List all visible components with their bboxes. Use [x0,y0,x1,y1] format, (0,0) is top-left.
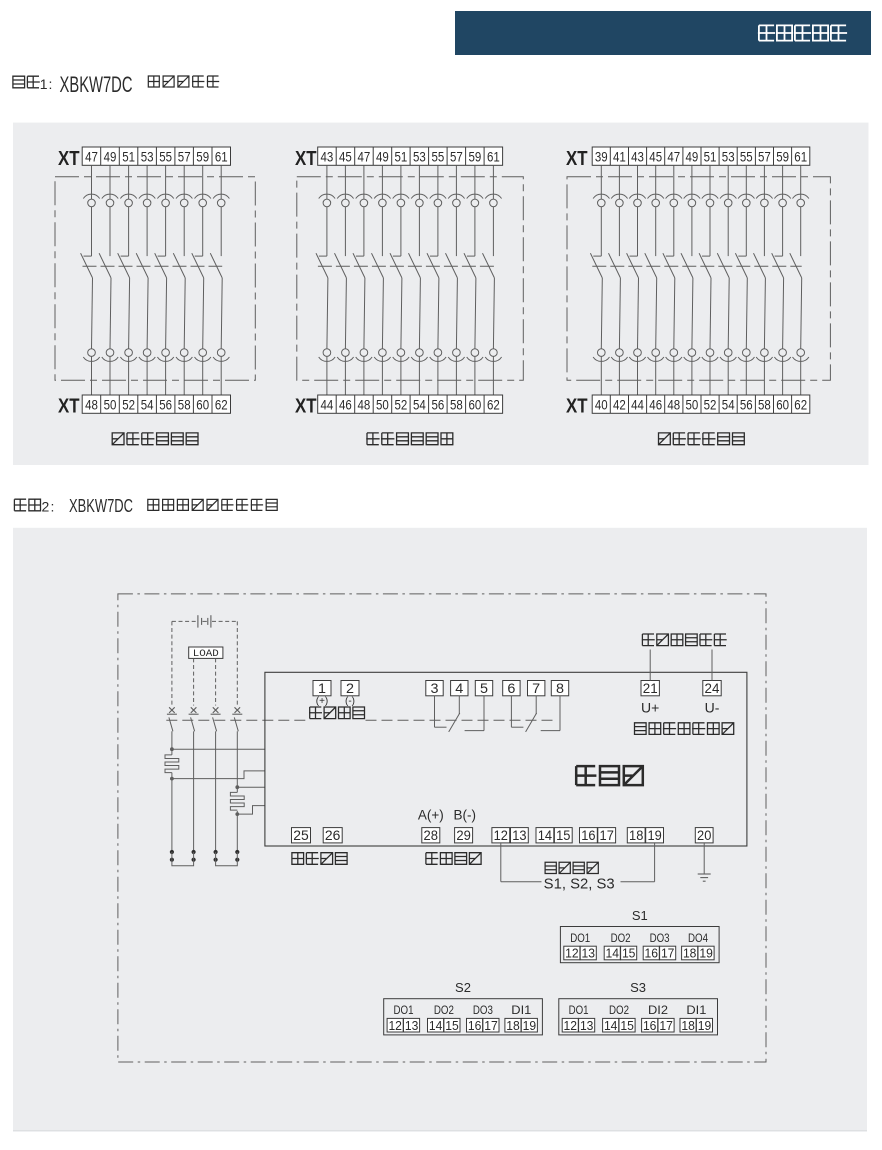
svg-text:XT: XT [58,396,80,418]
svg-text:S3: S3 [630,980,646,995]
svg-text:61: 61 [487,149,500,165]
svg-text:60: 60 [776,397,789,413]
svg-text:13: 13 [405,1018,419,1033]
svg-text:26: 26 [325,828,341,843]
svg-text:XT: XT [566,148,588,170]
svg-text:16: 16 [581,828,595,843]
svg-text:16: 16 [643,1018,657,1033]
svg-text:18: 18 [681,1018,695,1033]
svg-text:61: 61 [794,149,807,165]
svg-text:16: 16 [645,946,659,961]
svg-text:DO2: DO2 [609,1003,629,1017]
svg-text:54: 54 [722,397,735,413]
svg-text:LOAD: LOAD [193,648,219,660]
svg-text:41: 41 [613,149,626,165]
svg-text:DO1: DO1 [569,1003,589,1017]
svg-text:19: 19 [698,1018,712,1033]
svg-text:61: 61 [215,149,228,165]
svg-text:1: 1 [318,681,326,696]
svg-text:12: 12 [494,828,508,843]
svg-text:49: 49 [686,149,699,165]
svg-text:57: 57 [758,149,771,165]
svg-text:62: 62 [215,397,228,413]
svg-text:21: 21 [643,681,658,696]
svg-text:2: 2 [346,681,354,696]
svg-text:S2: S2 [455,980,471,995]
svg-text:2: 2 [42,499,50,515]
svg-text:59: 59 [469,149,482,165]
svg-text:14: 14 [604,1018,618,1033]
svg-text:XT: XT [295,148,317,170]
svg-text:3: 3 [431,681,439,696]
svg-text:14: 14 [429,1018,443,1033]
svg-text:40: 40 [595,397,608,413]
svg-text:44: 44 [321,397,334,413]
svg-text:55: 55 [432,149,445,165]
svg-text:13: 13 [580,1018,594,1033]
svg-text:DO2: DO2 [611,931,631,945]
svg-text:62: 62 [487,397,500,413]
svg-text:45: 45 [649,149,662,165]
svg-text:4: 4 [455,681,463,696]
svg-text:24: 24 [705,681,720,696]
svg-text:53: 53 [722,149,735,165]
svg-text:46: 46 [649,397,662,413]
svg-text:56: 56 [432,397,445,413]
svg-text:42: 42 [613,397,626,413]
svg-text::: : [51,499,55,515]
svg-text:53: 53 [141,149,154,165]
svg-text:14: 14 [538,828,553,843]
svg-text:XBKW7DC: XBKW7DC [69,496,133,516]
svg-text:A(+): A(+) [418,808,444,823]
svg-text:25: 25 [293,828,309,843]
svg-text:60: 60 [469,397,482,413]
svg-text:18: 18 [506,1018,520,1033]
svg-text:20: 20 [697,828,712,843]
svg-text:51: 51 [122,149,135,165]
svg-text:51: 51 [395,149,408,165]
svg-text:58: 58 [178,397,191,413]
svg-text:19: 19 [647,828,661,843]
svg-text:13: 13 [582,946,596,961]
svg-text:52: 52 [395,397,408,413]
svg-text:7: 7 [532,681,540,696]
svg-text:DO1: DO1 [394,1003,414,1017]
svg-text:15: 15 [556,828,570,843]
svg-text:56: 56 [159,397,172,413]
svg-text:47: 47 [85,149,98,165]
svg-text:55: 55 [740,149,753,165]
svg-text:XT: XT [58,148,80,170]
svg-text:39: 39 [595,149,608,165]
svg-text:1: 1 [40,76,48,92]
svg-text:16: 16 [468,1018,482,1033]
svg-text:43: 43 [631,149,644,165]
svg-text:49: 49 [104,149,117,165]
svg-text:54: 54 [141,397,154,413]
svg-text:12: 12 [564,1018,578,1033]
svg-text:59: 59 [776,149,789,165]
svg-text:48: 48 [358,397,371,413]
svg-text:46: 46 [339,397,352,413]
svg-text:DO4: DO4 [688,931,708,945]
svg-text:U+: U+ [641,700,659,716]
svg-text:50: 50 [376,397,389,413]
svg-text:17: 17 [600,828,614,843]
svg-text:29: 29 [456,828,471,843]
svg-text:17: 17 [659,1018,673,1033]
svg-text:45: 45 [339,149,352,165]
svg-text:15: 15 [445,1018,459,1033]
svg-text:13: 13 [512,828,526,843]
svg-text:52: 52 [122,397,135,413]
svg-text:DI1: DI1 [511,1003,531,1017]
svg-text:28: 28 [424,828,439,843]
svg-text:S1, S2, S3: S1, S2, S3 [544,877,615,893]
svg-text:57: 57 [178,149,191,165]
svg-text:S1: S1 [632,908,648,923]
svg-text:XT: XT [566,396,588,418]
svg-text:48: 48 [667,397,680,413]
svg-text:DO1: DO1 [570,931,590,945]
svg-text:50: 50 [686,397,699,413]
svg-text:51: 51 [704,149,717,165]
svg-text:DO2: DO2 [434,1003,454,1017]
svg-text:58: 58 [758,397,771,413]
svg-text:12: 12 [565,946,579,961]
svg-text:19: 19 [523,1018,537,1033]
svg-text:48: 48 [85,397,98,413]
svg-text:58: 58 [450,397,463,413]
svg-text:43: 43 [321,149,334,165]
svg-text:18: 18 [629,828,643,843]
svg-text:18: 18 [683,946,697,961]
svg-text:15: 15 [622,946,636,961]
svg-text:DI1: DI1 [686,1003,706,1017]
svg-text:B(-): B(-) [454,808,477,823]
svg-text:52: 52 [704,397,717,413]
svg-text::: : [49,76,53,92]
svg-text:15: 15 [620,1018,634,1033]
svg-text:57: 57 [450,149,463,165]
svg-text:XT: XT [295,396,317,418]
svg-text:DO3: DO3 [473,1003,493,1017]
svg-text:47: 47 [358,149,371,165]
svg-text:XBKW7DC: XBKW7DC [60,72,133,97]
svg-text:55: 55 [159,149,172,165]
svg-text:12: 12 [388,1018,402,1033]
svg-text:53: 53 [413,149,426,165]
svg-text:14: 14 [606,946,620,961]
svg-text:54: 54 [413,397,426,413]
svg-text:5: 5 [480,681,488,696]
svg-text:(-): (-) [345,696,355,707]
svg-text:17: 17 [661,946,675,961]
svg-text:DO3: DO3 [650,931,670,945]
svg-text:56: 56 [740,397,753,413]
svg-text:47: 47 [667,149,680,165]
svg-text:50: 50 [104,397,117,413]
svg-text:62: 62 [794,397,807,413]
svg-text:59: 59 [196,149,209,165]
svg-text:60: 60 [196,397,209,413]
svg-text:DI2: DI2 [648,1003,668,1017]
svg-text:44: 44 [631,397,644,413]
svg-text:19: 19 [699,946,713,961]
svg-text:U-: U- [705,700,720,716]
svg-text:8: 8 [556,681,564,696]
svg-text:17: 17 [484,1018,498,1033]
svg-text:49: 49 [376,149,389,165]
svg-text:6: 6 [507,681,515,696]
svg-text:(+): (+) [316,696,329,707]
